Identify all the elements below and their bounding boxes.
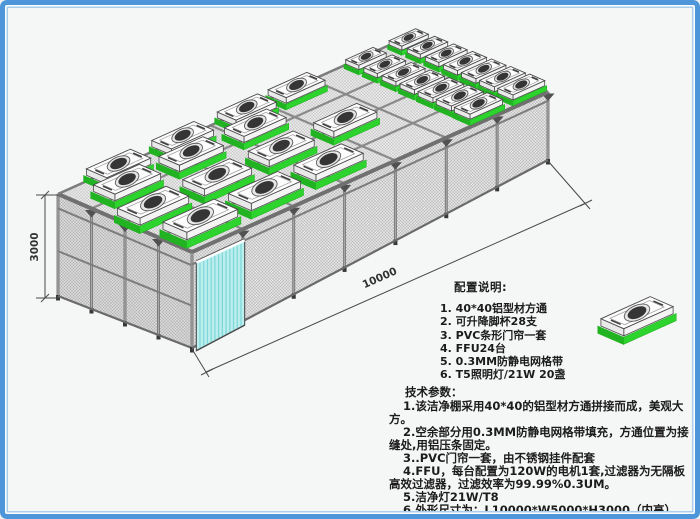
tech-param-item: 1.该洁净棚采用40*40的铝型材方通拼接而成，美观大方。	[389, 400, 695, 426]
blueprint-page: { "frame": { "background": "#f5f6f6", "b…	[0, 0, 700, 519]
config-notes-title: 配置说明:	[454, 281, 565, 294]
config-notes: 配置说明: 1. 40*40铝型材方通 2. 可升降脚杯28支 3. PVC条形…	[440, 281, 565, 381]
tech-param-item: 6.外形尺寸为：L10000*W5000*H3000（内高）	[389, 504, 695, 517]
config-note-item: 1. 40*40铝型材方通	[440, 302, 565, 315]
config-note-item: 4. FFU24台	[440, 342, 565, 355]
config-note-item: 3. PVC条形门帘一套	[440, 329, 565, 342]
dimension-height-label: 3000	[29, 232, 41, 261]
config-note-item: 5. 0.3MM防静电网格带	[440, 355, 565, 368]
tech-param-item: 2.空余部分用0.3MM防静电网格带填充，方通位置为接缝处,用铝压条固定。	[389, 426, 695, 452]
tech-param-item: 4.FFU，每台配置为120W的电机1套,过滤器为无隔板高效过滤器，过滤效率为9…	[389, 465, 695, 491]
tech-params-title: 技术参数：	[389, 386, 695, 399]
ffu-detail-thumbnail	[598, 297, 676, 345]
dimension-length-label: 10000	[361, 265, 399, 291]
config-note-item: 6. T5照明灯/21W 20盏	[440, 368, 565, 381]
ffu-unit	[598, 297, 676, 345]
tech-params: 技术参数： 1.该洁净棚采用40*40的铝型材方通拼接而成，美观大方。 2.空余…	[389, 386, 695, 517]
config-note-item: 2. 可升降脚杯28支	[440, 315, 565, 328]
